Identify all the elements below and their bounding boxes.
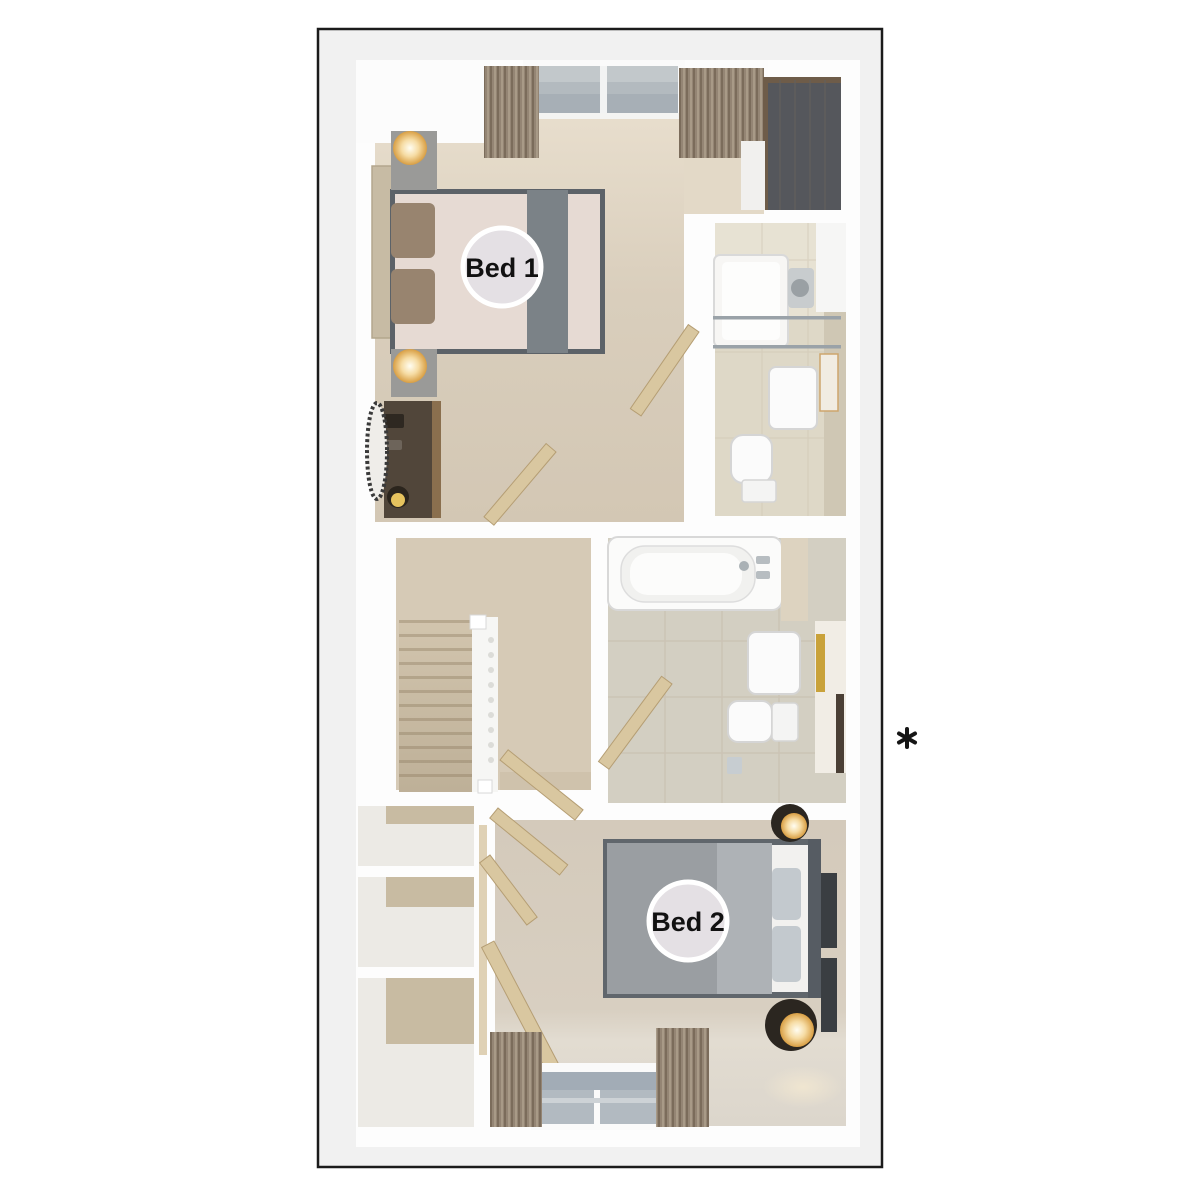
svg-text:Bed 2: Bed 2 <box>651 907 725 937</box>
svg-text:Bed 1: Bed 1 <box>465 253 539 283</box>
